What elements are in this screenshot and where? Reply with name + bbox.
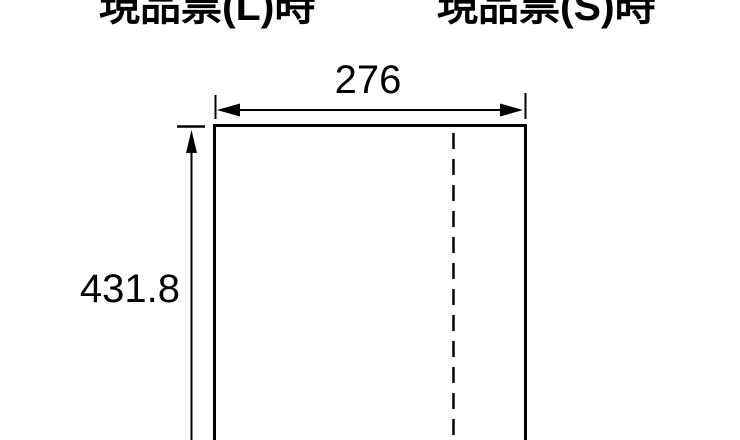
width-dimension-value: 276 — [335, 58, 402, 102]
drawing-canvas: 276 431.8 — [0, 0, 740, 440]
sheet-outline — [215, 126, 526, 440]
height-dimension: 431.8 — [80, 127, 205, 440]
width-arrow-right-icon — [500, 104, 523, 117]
height-dimension-value: 431.8 — [80, 267, 180, 311]
width-dimension: 276 — [216, 58, 526, 119]
height-arrow-up-icon — [186, 130, 197, 153]
width-arrow-left-icon — [217, 104, 240, 117]
